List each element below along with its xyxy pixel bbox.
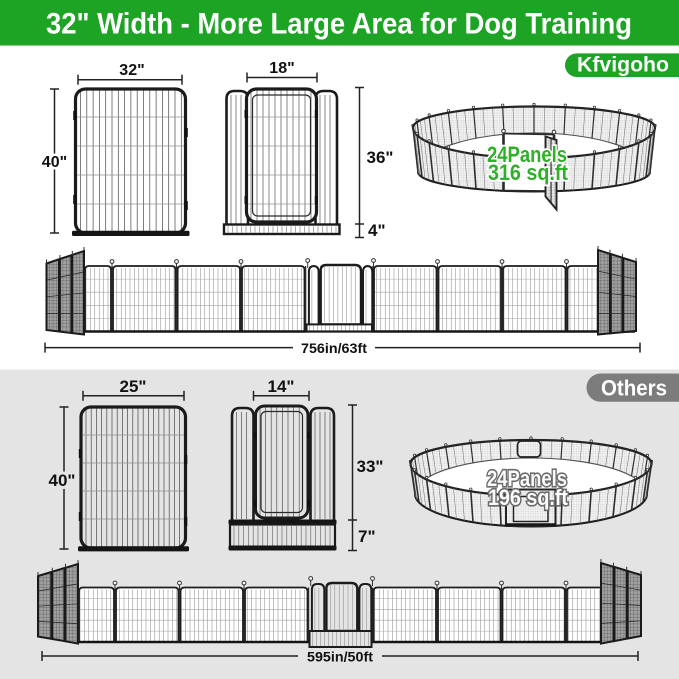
- svg-text:4": 4": [368, 221, 386, 240]
- svg-text:316 sq.ft: 316 sq.ft: [488, 160, 569, 185]
- svg-text:32": 32": [119, 62, 144, 79]
- svg-text:32" Width - More Large Area fo: 32" Width - More Large Area for Dog Trai…: [46, 8, 632, 41]
- svg-text:40": 40": [49, 471, 76, 490]
- svg-text:18": 18": [269, 60, 294, 77]
- svg-text:595in/50ft: 595in/50ft: [307, 649, 373, 665]
- svg-text:756in/63ft: 756in/63ft: [301, 340, 367, 356]
- svg-text:33": 33": [357, 457, 384, 476]
- svg-text:196 sq.ft: 196 sq.ft: [488, 485, 569, 510]
- svg-text:36": 36": [367, 148, 394, 167]
- svg-text:Others: Others: [601, 376, 667, 401]
- svg-text:40": 40": [42, 154, 67, 171]
- svg-text:14": 14": [268, 377, 295, 396]
- svg-text:7": 7": [358, 527, 376, 546]
- svg-text:25": 25": [120, 377, 147, 396]
- svg-text:Kfvigoho: Kfvigoho: [577, 54, 669, 77]
